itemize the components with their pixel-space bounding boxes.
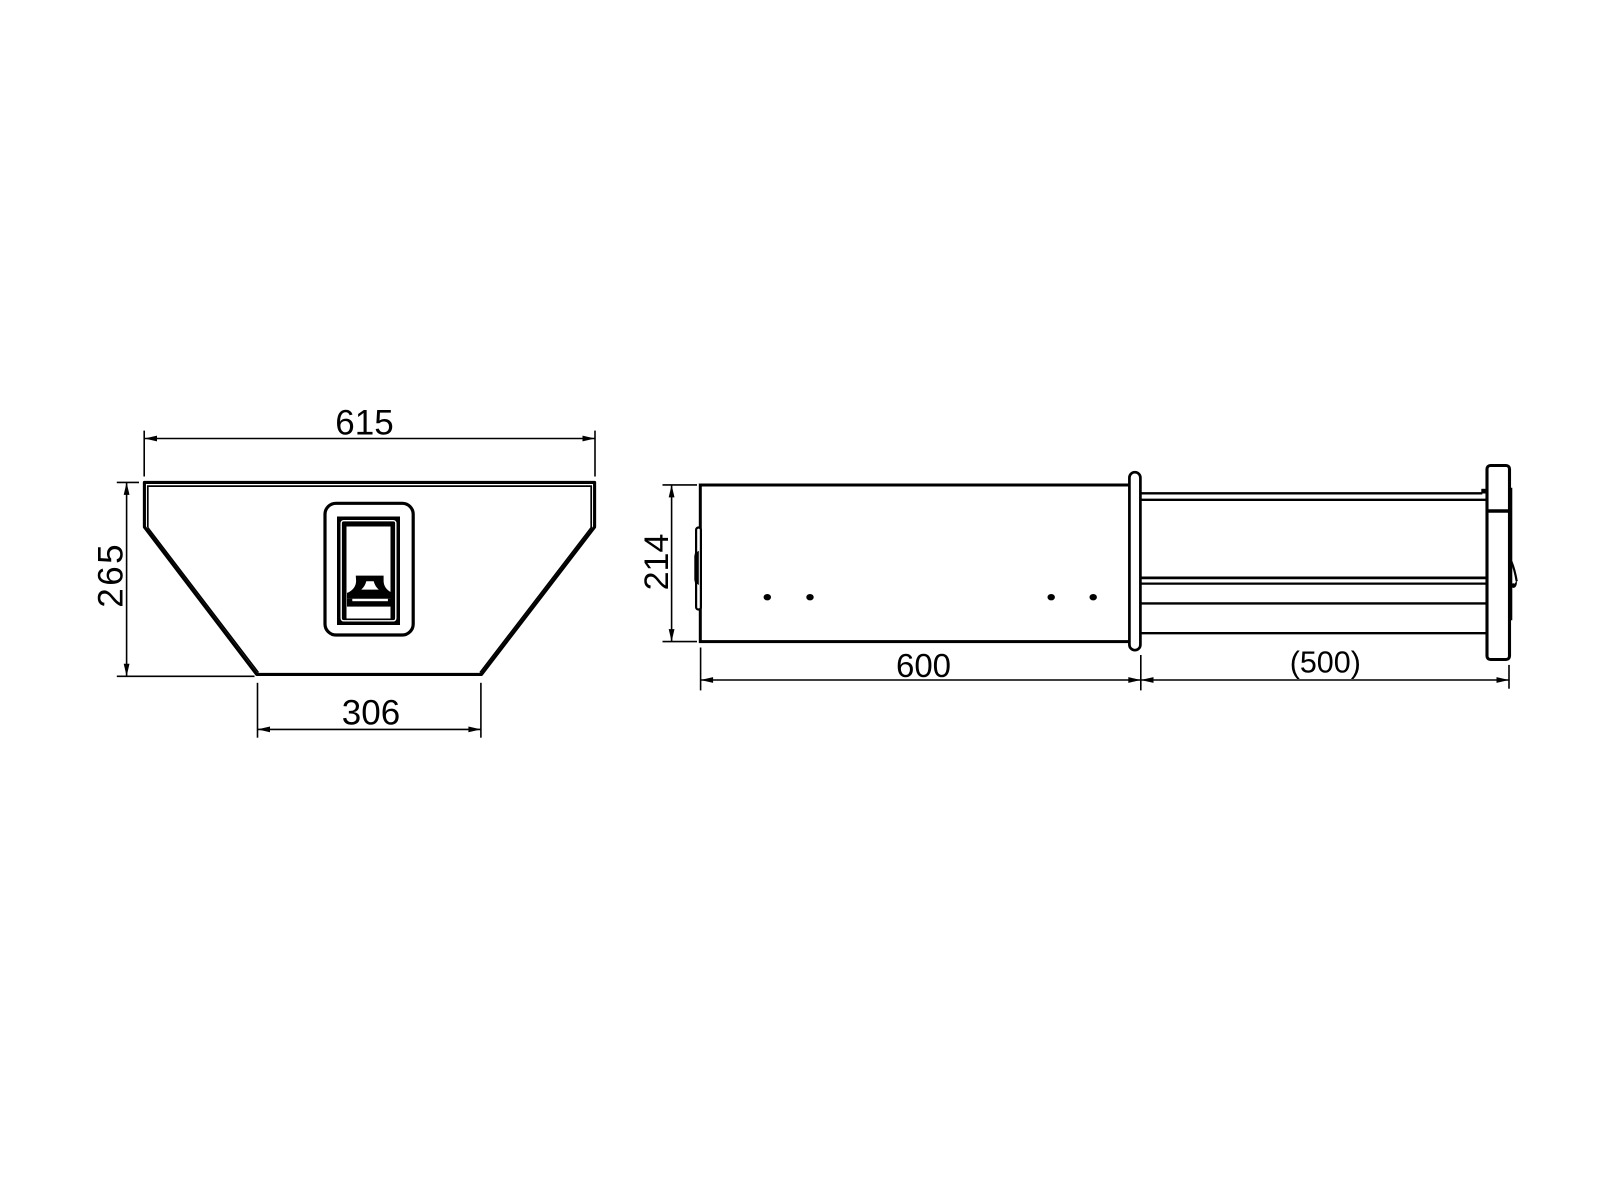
- svg-text:214: 214: [638, 534, 676, 591]
- svg-text:(500): (500): [1290, 646, 1361, 680]
- svg-text:306: 306: [342, 693, 400, 732]
- svg-text:615: 615: [335, 404, 393, 443]
- svg-text:265: 265: [91, 542, 130, 608]
- svg-text:600: 600: [896, 647, 951, 684]
